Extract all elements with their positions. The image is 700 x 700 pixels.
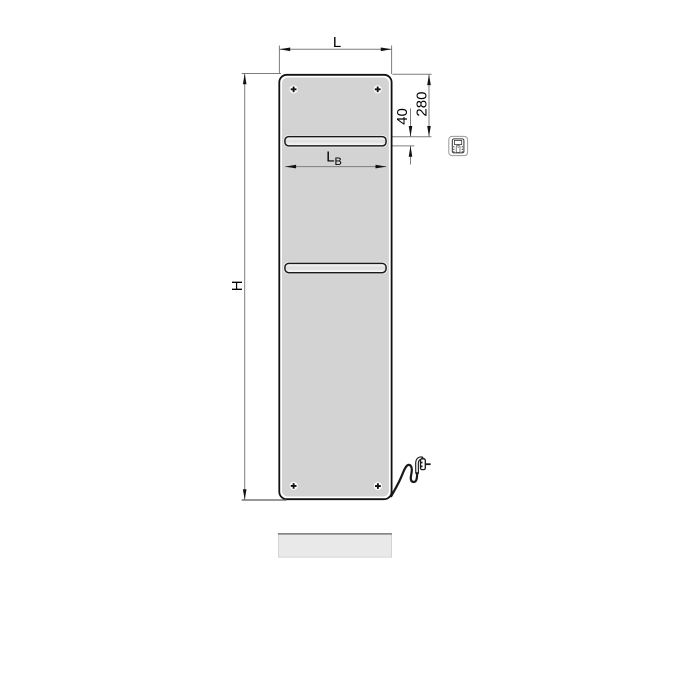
svg-text:40: 40	[394, 108, 411, 125]
svg-text:L: L	[333, 34, 341, 51]
svg-text:H: H	[229, 280, 246, 291]
svg-text:280: 280	[413, 92, 430, 117]
